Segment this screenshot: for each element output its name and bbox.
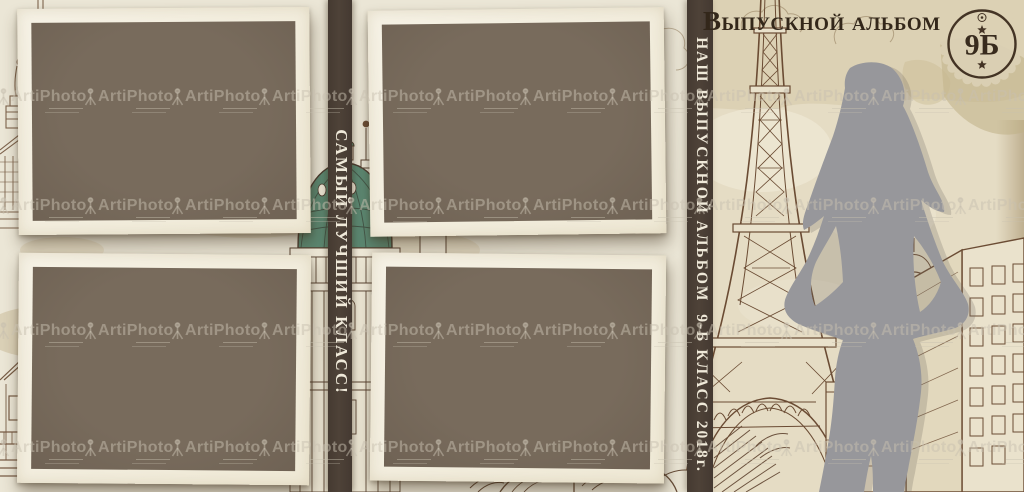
cover-edge-caption: НАШ ВЫПУСКНОЙ АЛЬБОМ 9-Б КЛАСС 2018г. [692,37,710,473]
photo-frame [17,253,311,486]
photo-placeholder [31,21,296,221]
photo-frame [368,7,667,237]
spine-caption: САМЫЙ ЛУЧШИЙ КЛАСС! [331,129,351,395]
album-template-spread: САМЫЙ ЛУЧШИЙ КЛАСС! НАШ ВЫПУСКНОЙ АЛЬБОМ… [0,0,1024,492]
class-badge-stamp: 9Б [938,1,1024,89]
photo-frame [370,252,666,483]
badge-class-label: 9Б [965,29,1000,62]
photo-frame [17,7,311,235]
photo-placeholder [384,267,652,470]
album-title: Выпускной альбом [703,5,941,37]
photo-placeholder [382,21,652,222]
light-patch [692,108,832,192]
photo-placeholder [31,267,297,471]
